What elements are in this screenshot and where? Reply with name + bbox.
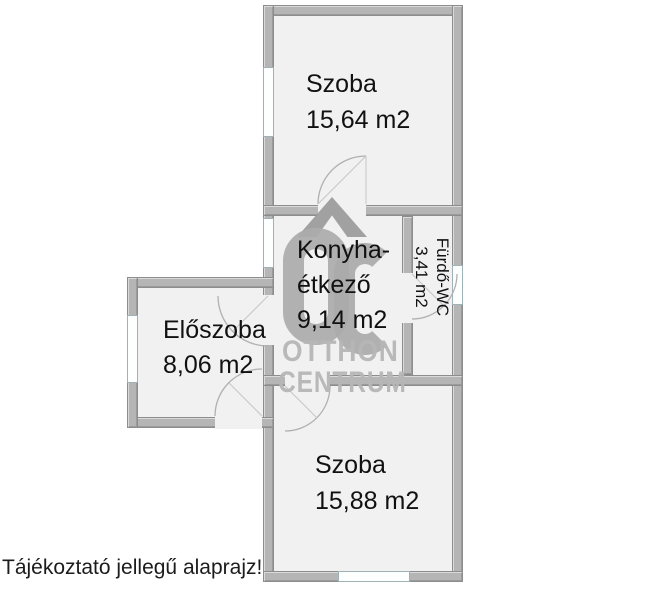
room-name: Fürdő-WC (432, 238, 453, 316)
door-opening-szoba-top (318, 204, 366, 217)
room-name: Szoba (315, 447, 419, 483)
room-label-szoba-bottom: Szoba 15,88 m2 (315, 447, 419, 519)
room-area: 15,64 m2 (306, 102, 410, 138)
wall-eloszoba-top (127, 277, 274, 288)
room-label-konyha: Konyha- étkező 9,14 m2 (297, 233, 390, 338)
room-name: Szoba (306, 66, 410, 102)
wall-top (263, 5, 463, 16)
room-label-furdo-wc: Fürdő-WC 3,41 m2 (411, 238, 453, 316)
window-konyha (263, 218, 274, 268)
room-area: 9,14 m2 (297, 303, 390, 338)
room-name-line1: Konyha- (297, 233, 390, 268)
room-area: 3,41 m2 (411, 238, 432, 316)
window-furdo-wc (452, 265, 463, 305)
floor-plan: OTTHON CENTRUM Szoba 15,64 m2 Konyha- ét… (0, 0, 667, 597)
window-szoba-top (263, 67, 274, 137)
room-name-line2: étkező (297, 268, 390, 303)
window-eloszoba (127, 315, 138, 383)
disclaimer-text: Tájékoztató jellegű alaprajz! (2, 556, 262, 580)
room-label-eloszoba: Előszoba 8,06 m2 (163, 313, 266, 383)
room-label-szoba-top: Szoba 15,64 m2 (306, 66, 410, 138)
room-name: Előszoba (163, 313, 266, 348)
door-opening-entrance (215, 416, 262, 429)
door-opening-szoba-bottom (285, 374, 330, 387)
window-szoba-bottom (338, 571, 410, 582)
room-area: 8,06 m2 (163, 348, 266, 383)
room-area: 15,88 m2 (315, 483, 419, 519)
